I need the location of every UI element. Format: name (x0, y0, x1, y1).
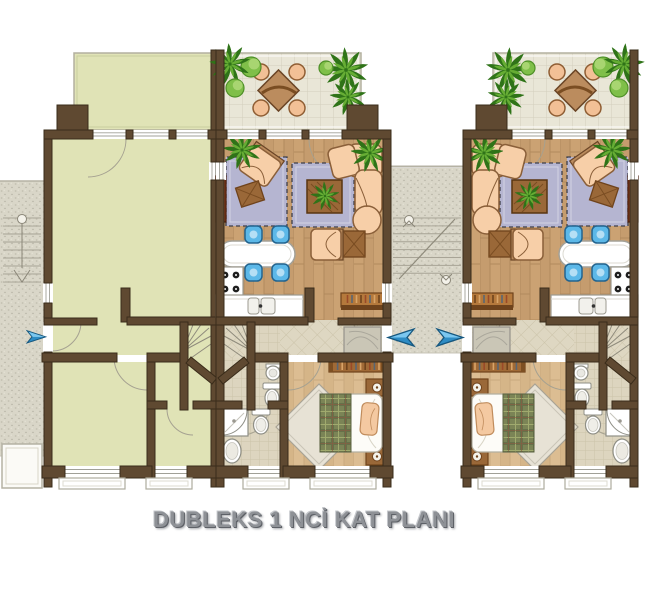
left-duplex-unit (210, 44, 393, 489)
window-sills (478, 478, 611, 489)
living-room (52, 139, 211, 320)
bedroom (52, 362, 147, 466)
unit-shell (42, 50, 219, 489)
kitchen-counter (216, 295, 303, 317)
toilet (252, 409, 270, 434)
terrace-chair (549, 64, 565, 80)
dining-table (219, 241, 295, 267)
doormat (344, 327, 381, 353)
neighbor-unit-shell (42, 50, 219, 489)
sideboard (341, 293, 383, 310)
window-sills (59, 478, 192, 489)
dining-chair (592, 226, 609, 243)
dining-chair (565, 264, 582, 281)
kitchen-counter (551, 295, 638, 317)
toilet (584, 409, 602, 434)
shared-entry-stairwell (391, 167, 463, 354)
dining-chair (245, 264, 262, 281)
window-sills (243, 478, 376, 489)
dining-chair (245, 226, 262, 243)
floor-plan-canvas: DUBLEKS 1 NCİ KAT PLANI (0, 0, 672, 600)
armchair (311, 229, 343, 260)
terrace-chair (585, 100, 601, 116)
terrace-chair (289, 100, 305, 116)
side-table (489, 231, 511, 257)
window-planter (2, 444, 42, 488)
dining-table (559, 241, 635, 267)
sideboard (471, 293, 513, 310)
dining-chair (272, 226, 289, 243)
dining-chair (565, 226, 582, 243)
dining-chair (272, 264, 289, 281)
wc-sink (266, 364, 280, 380)
terrace-chair (549, 100, 565, 116)
side-table (343, 231, 365, 257)
terrace-chair (289, 64, 305, 80)
terrace-dining-set (253, 64, 305, 116)
terrace-dining-set (549, 64, 601, 116)
terrace-chair (253, 100, 269, 116)
terrace (74, 53, 215, 130)
plant-bush (521, 61, 535, 75)
right-duplex-unit (461, 44, 644, 489)
plan-title: DUBLEKS 1 NCİ KAT PLANI (0, 507, 608, 533)
doormat (473, 327, 510, 353)
armchair (511, 229, 543, 260)
plant-bush (610, 79, 628, 97)
wc-sink (574, 364, 588, 380)
plant-bush (319, 61, 333, 75)
duplex-unit (461, 44, 644, 489)
dining-chair (592, 264, 609, 281)
shower (606, 409, 633, 436)
duplex-unit (210, 44, 393, 489)
plant-bush (226, 79, 244, 97)
shower (221, 409, 248, 436)
